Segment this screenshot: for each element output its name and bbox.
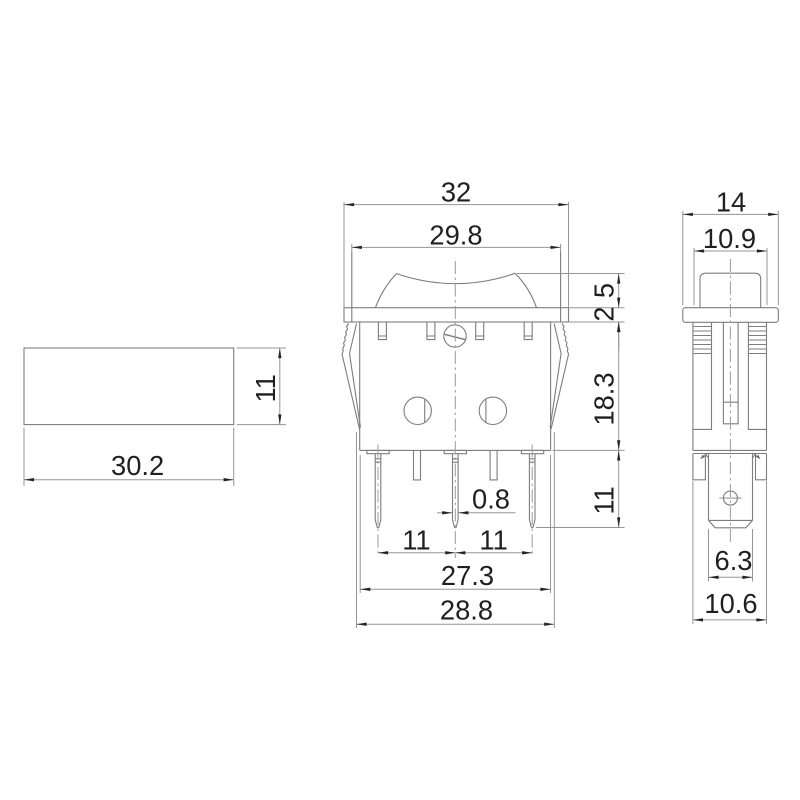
svg-text:5: 5 <box>589 283 620 298</box>
svg-text:30.2: 30.2 <box>111 450 164 481</box>
svg-text:11: 11 <box>589 486 620 514</box>
svg-text:11: 11 <box>250 374 281 402</box>
svg-text:11: 11 <box>479 525 507 556</box>
svg-text:27.3: 27.3 <box>441 560 494 591</box>
svg-text:28.8: 28.8 <box>440 595 493 626</box>
svg-text:14: 14 <box>716 186 746 217</box>
svg-text:11: 11 <box>402 525 430 556</box>
svg-text:0.8: 0.8 <box>472 484 510 515</box>
svg-text:32: 32 <box>441 177 471 208</box>
svg-text:2: 2 <box>589 306 620 321</box>
svg-text:29.8: 29.8 <box>429 219 482 250</box>
svg-text:18.3: 18.3 <box>589 372 620 425</box>
svg-text:10.6: 10.6 <box>704 588 757 619</box>
svg-text:10.9: 10.9 <box>703 223 756 254</box>
svg-text:6.3: 6.3 <box>715 545 753 576</box>
